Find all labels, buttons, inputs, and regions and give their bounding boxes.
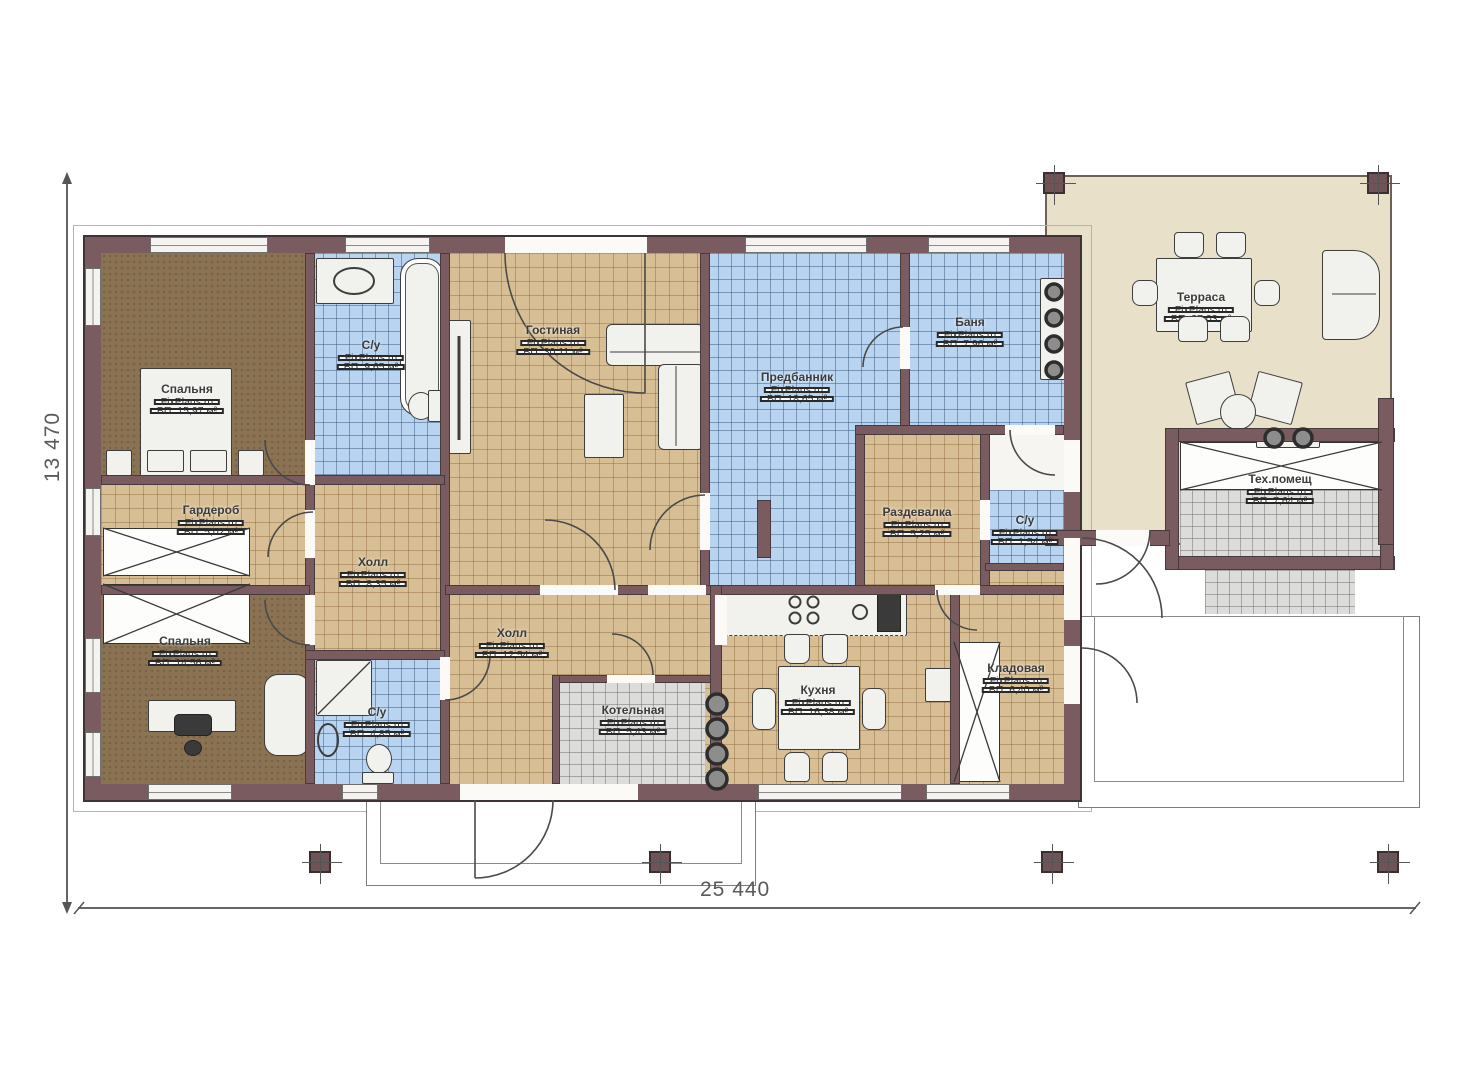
room-label-boiler-room: Котельная FixPlans.ru ВП: 5,43 м²	[599, 703, 667, 735]
room-area: ВП: 4,85 м²	[343, 731, 411, 737]
door-opening	[1005, 425, 1055, 435]
entrance-porch-inner	[380, 798, 742, 864]
wall-pillar	[757, 500, 771, 558]
room-name: Кухня	[781, 683, 855, 697]
door-opening	[648, 585, 706, 595]
door-opening	[607, 675, 655, 683]
wall	[101, 475, 445, 485]
room-area: ВП: 6,40 м²	[982, 687, 1050, 693]
round-table-icon	[1220, 394, 1256, 430]
room-area: ВП: 15,97 м²	[150, 408, 224, 414]
chair-icon	[1174, 232, 1204, 258]
terrace-post	[1043, 172, 1065, 194]
column-post	[649, 851, 671, 873]
chair-icon	[1216, 232, 1246, 258]
room-name: Гардероб	[177, 503, 245, 517]
chair-icon	[1254, 280, 1280, 306]
room-name: Предбанник	[760, 370, 834, 384]
room-area: ВП: 30,11 м²	[516, 349, 590, 355]
room-label-tech-room: Тех.помещ FixPlans.ru ВП: 7,64 м²	[1246, 472, 1314, 504]
chair-icon	[1132, 280, 1158, 306]
window	[758, 784, 902, 800]
door-opening	[305, 440, 315, 485]
dimension-line-horizontal	[78, 907, 1416, 909]
room-label-bedroom-2: Спальня FixPlans.ru ВП: 14,56 м²	[148, 634, 222, 666]
room-label-razdevalka: Раздевалка FixPlans.ru ВП: 5,25 м²	[882, 505, 951, 537]
room-area: ВП: 7,96 м²	[936, 341, 1004, 347]
terrace-sofa-icon	[1322, 250, 1380, 340]
door-opening	[715, 595, 727, 645]
room-name: Холл	[339, 555, 407, 569]
room-name: Котельная	[599, 703, 667, 717]
door-opening	[700, 493, 710, 550]
column-post	[1377, 851, 1399, 873]
door-opening	[980, 500, 990, 540]
door-opening	[305, 595, 315, 645]
dimension-width-label: 25 440	[700, 878, 770, 902]
room-label-living-room: Гостиная FixPlans.ru ВП: 30,11 м²	[516, 323, 590, 355]
wall	[985, 563, 1064, 571]
room-name: Кладовая	[982, 661, 1050, 675]
wall	[950, 585, 960, 784]
door-opening	[1096, 530, 1150, 546]
room-name: Тех.помещ	[1246, 472, 1314, 486]
room-label-bedroom-1: Спальня FixPlans.ru ВП: 15,97 м²	[150, 382, 224, 414]
dimension-height-label: 13 470	[41, 402, 65, 492]
window	[345, 237, 430, 253]
window	[85, 638, 101, 693]
window	[85, 488, 101, 536]
wall	[855, 430, 865, 590]
window	[148, 784, 232, 800]
room-name: С/у	[337, 338, 405, 352]
room-name: Раздевалка	[882, 505, 951, 519]
door-opening	[1064, 440, 1080, 492]
room-area: ВП: 5,43 м²	[599, 729, 667, 735]
room-label-bathroom-2: С/у FixPlans.ru ВП: 1,54 м²	[991, 513, 1059, 545]
room-label-hall-1: Холл FixPlans.ru ВП: 8,35 м²	[339, 555, 407, 587]
room-area: ВП: 12,54 м²	[475, 652, 549, 658]
room-label-wardrobe: Гардероб FixPlans.ru ВП: 5,02 м²	[177, 503, 245, 535]
window	[342, 784, 378, 800]
room-area: ВП: 5,02 м²	[177, 529, 245, 535]
room-label-bathroom-3: С/у FixPlans.ru ВП: 4,85 м²	[343, 705, 411, 737]
room-area: ВП: 7,64 м²	[1246, 498, 1314, 504]
door-opening	[440, 657, 450, 700]
door-opening	[900, 327, 910, 369]
chair-icon	[1220, 316, 1250, 342]
room-name: Спальня	[148, 634, 222, 648]
room-name: Гостиная	[516, 323, 590, 337]
room-area: ВП: 16,38 м²	[781, 709, 855, 715]
room-area: ВП: 9,65 м²	[337, 364, 405, 370]
chair-icon	[1178, 316, 1208, 342]
tech-wall	[1165, 428, 1395, 442]
room-label-predbannik: Предбанник FixPlans.ru ВП: 18,65 м²	[760, 370, 834, 402]
dimension-line-vertical	[66, 180, 68, 908]
floor-plan-canvas: Спальня FixPlans.ru ВП: 15,97 м² С/у Fix…	[0, 0, 1473, 1080]
room-area: ВП: 8,35 м²	[339, 581, 407, 587]
door-opening	[1064, 538, 1080, 620]
door-opening	[305, 510, 315, 558]
wall	[552, 675, 560, 784]
window	[150, 237, 268, 253]
window	[926, 784, 1010, 800]
door-opening	[505, 237, 647, 253]
room-area: ВП: 5,25 м²	[883, 531, 951, 537]
room-label-banya: Баня FixPlans.ru ВП: 7,96 м²	[936, 315, 1004, 347]
room-area: ВП: 1,54 м²	[991, 539, 1059, 545]
wall	[305, 650, 445, 660]
window	[85, 732, 101, 777]
wall	[440, 253, 450, 784]
right-porch-inner	[1094, 616, 1404, 782]
tech-wall	[1165, 556, 1395, 570]
room-label-hall-2: Холл FixPlans.ru ВП: 12,54 м²	[475, 626, 549, 658]
terrace-post	[1367, 172, 1389, 194]
wall	[101, 585, 310, 595]
door-opening	[935, 585, 980, 595]
room-name: Холл	[475, 626, 549, 640]
room-label-bathroom-1: С/у FixPlans.ru ВП: 9,65 м²	[337, 338, 405, 370]
room-name: Баня	[936, 315, 1004, 329]
door-opening	[540, 585, 618, 595]
door-arc	[1082, 538, 1162, 618]
room-name: С/у	[343, 705, 411, 719]
tech-wall	[1165, 428, 1179, 570]
room-name: Спальня	[150, 382, 224, 396]
room-label-kitchen: Кухня FixPlans.ru ВП: 16,38 м²	[781, 683, 855, 715]
column-post	[1041, 851, 1063, 873]
room-name: С/у	[991, 513, 1059, 527]
entrance-door-opening	[460, 784, 638, 800]
room-area: ВП: 14,56 м²	[148, 660, 222, 666]
room-area: ВП: 18,65 м²	[760, 396, 834, 402]
column-post	[309, 851, 331, 873]
room-label-storage: Кладовая FixPlans.ru ВП: 6,40 м²	[982, 661, 1050, 693]
window	[85, 268, 101, 326]
door-opening	[1064, 646, 1080, 704]
terrace-wall	[1378, 398, 1394, 545]
window	[745, 237, 867, 253]
room-name: Терраса	[1164, 290, 1238, 304]
window	[928, 237, 1010, 253]
